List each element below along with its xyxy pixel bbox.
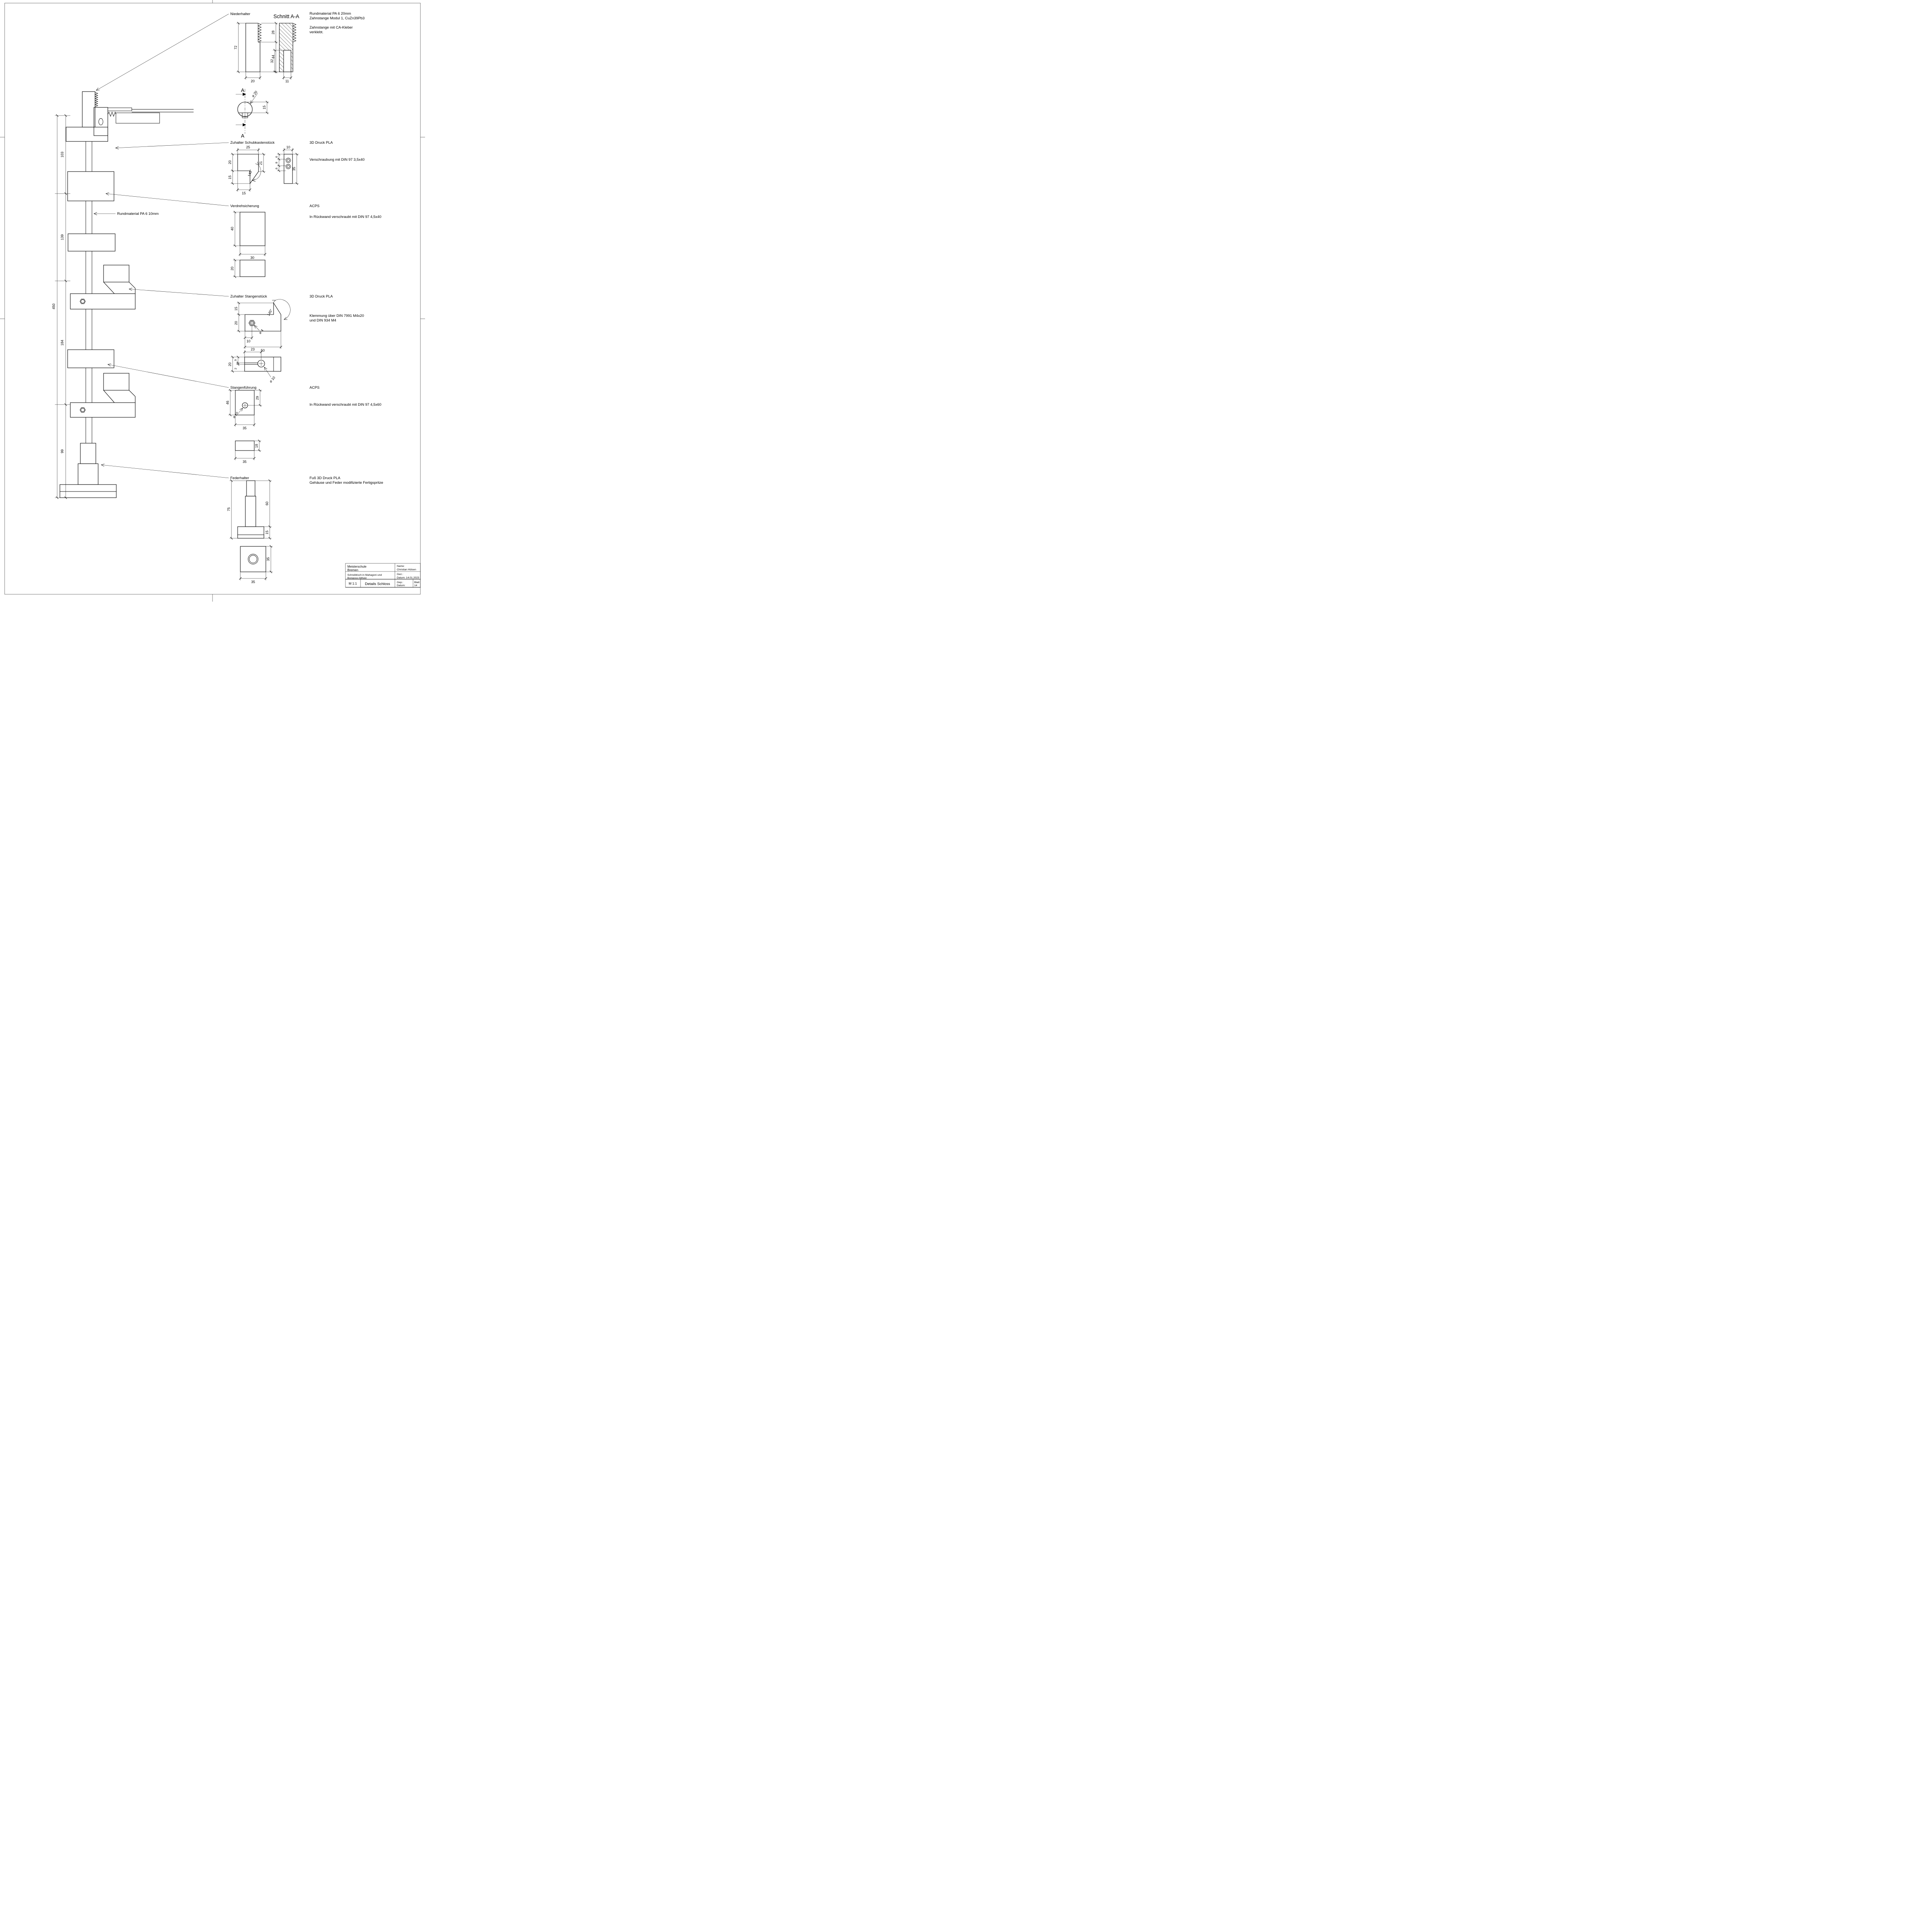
dim-15base: 15 — [265, 531, 269, 534]
dim-28: 28 — [271, 31, 275, 34]
dim-35f: 35 — [243, 426, 247, 430]
rack-teeth-detail — [258, 23, 261, 42]
scale-value: M 1:1 — [349, 582, 357, 585]
label-stangenstueck: Zuhalter Stangenstück — [230, 294, 267, 299]
dim-15t: 15 — [234, 307, 238, 311]
note-material-top-2: Zahnstange Modul 1, CuZn39Pb3 — [310, 16, 365, 20]
dim-20s: 20 — [234, 321, 238, 325]
callout-leaders: Niederhalter Zuhalter Schubkastenstück V… — [96, 12, 275, 480]
dim-20h: 20 — [228, 160, 232, 164]
cam-clamp-1 — [70, 265, 135, 309]
dim-99: 99 — [60, 449, 64, 453]
notes-column: Rundmaterial PA 6 20mm Zahnstange Modul … — [310, 12, 383, 485]
guide-block-3 — [68, 234, 115, 251]
label-schubkasten: Zuhalter Schubkastenstück — [230, 141, 275, 145]
dim-6a: 6 — [275, 156, 278, 158]
dim-35sq-r: 35 — [266, 557, 270, 561]
section-arrow-top — [243, 93, 246, 96]
dim-40: 40 — [230, 227, 234, 231]
section-rack-teeth — [293, 23, 296, 42]
dim-35sq-b: 35 — [251, 580, 255, 584]
detail-niederhalter: 72 28 44 20 — [234, 23, 278, 83]
label-fuehrung: Stangenführung — [230, 386, 257, 390]
detail-stangenstueck: 145° ⌀ 4 15 20 10 50 — [228, 299, 290, 383]
note-glue-1: Zahnstange mit CA-Kleber — [310, 26, 353, 30]
dim-72: 72 — [234, 46, 238, 49]
guide-block-1 — [66, 127, 108, 141]
detail-fuehrung: ⌀ 10 46 29 35 18 35 — [226, 390, 262, 464]
note-feder-material-2: Gehäuse und Feder modifizierte Fertigspr… — [310, 481, 383, 485]
note-material-top-1: Rundmaterial PA 6 20mm — [310, 12, 351, 16]
dim-46: 46 — [226, 401, 230, 405]
note-stangenstueck-mount-1: Klemmung über DIN 7991 M4x20 — [310, 314, 364, 318]
dim-20v: 20 — [230, 267, 234, 270]
title-block: Meisterschule Bremen Name: Christian Hül… — [345, 563, 420, 587]
feder-pin — [247, 481, 255, 496]
feder-bottom-view — [240, 546, 266, 572]
section-letter-bottom: A — [241, 133, 245, 139]
note-schubkasten-material: 3D Druck PLA — [310, 141, 333, 145]
dim-8: 8 — [275, 162, 278, 163]
fuehrung-plate — [235, 441, 254, 451]
sheet-number: 14 — [414, 584, 417, 587]
dim-9: 9 — [234, 359, 237, 361]
assembly-view: 103 139 184 99 450 Rundmaterial PA 6 10m… — [52, 92, 194, 498]
rack-bar — [82, 92, 95, 127]
project-line-2: Bongossi Altholz — [347, 577, 367, 580]
dim-145-2: 145° — [267, 308, 274, 316]
dim-60: 60 — [265, 502, 269, 505]
feder-base — [238, 527, 264, 538]
sheet-border — [0, 0, 425, 602]
cam-clamp-2 — [70, 373, 135, 417]
note-schubkasten-mount: Verschraubung mit DIN 97 3,5x40 — [310, 158, 365, 162]
sheet-title: Details Schloss — [365, 582, 390, 586]
latch-block — [94, 107, 108, 136]
dim-18: 18 — [255, 444, 259, 448]
vertical-rod — [86, 141, 92, 443]
verdreh-front — [240, 212, 265, 246]
note-stangenstueck-mount-2: und DIN 934 M4 — [310, 318, 336, 323]
label-niederhalter: Niederhalter — [230, 12, 250, 16]
dim-139: 139 — [60, 234, 64, 240]
note-verdreh-mount: In Rückwand verschraubt mit DIN 97 4,5x4… — [310, 215, 381, 219]
section-title: Schnitt A-A — [274, 14, 299, 19]
name-label: Name: — [397, 565, 405, 568]
school-name-2: Bremen — [347, 568, 358, 572]
detail-feder: 75 60 15 35 35 — [227, 481, 273, 584]
drawer-plate — [116, 113, 160, 123]
verdreh-side — [240, 260, 265, 277]
project-line-1: Schreibtisch in Mahagoni und — [347, 574, 382, 577]
dim-dia10p: ⌀ 10 — [269, 376, 276, 383]
gep-label: Gep.: — [397, 581, 403, 584]
knob-plan-view: A A ⌀ 20 15 — [236, 87, 269, 139]
gez-date: Datum: 14.01.2023 — [397, 577, 419, 579]
spring-holder-foot — [60, 443, 116, 498]
dim-23: 23 — [251, 347, 255, 351]
dim-20w: 20 — [251, 79, 255, 83]
dim-75: 75 — [227, 507, 231, 511]
gez-label: Gez.: — [397, 573, 403, 576]
dim-450: 450 — [52, 303, 56, 309]
spring — [108, 112, 116, 116]
dim-35side: 35 — [292, 167, 296, 171]
dim-35fp: 35 — [243, 460, 247, 464]
guide-block-4 — [68, 350, 114, 368]
drawing-sheet: 103 139 184 99 450 Rundmaterial PA 6 10m… — [0, 0, 425, 602]
dim-10n: 10 — [247, 339, 250, 343]
name-value: Christian Hülsen — [397, 568, 416, 571]
dim-184: 184 — [60, 340, 64, 345]
dim-6b: 6 — [275, 168, 278, 169]
label-feder: Federhalter — [230, 476, 249, 480]
note-stangenstueck-material: 3D Druck PLA — [310, 294, 333, 299]
note-glue-2: verklebt. — [310, 30, 323, 34]
section-a-a: Schnitt A-A 32 11 — [270, 14, 299, 83]
dim-103: 103 — [60, 151, 64, 157]
dim-25: 25 — [246, 145, 250, 149]
rod-material-callout: Rundmaterial PA 6 10mm — [94, 212, 159, 216]
rack-teeth — [95, 92, 98, 107]
gep-date: Datum: — [397, 584, 405, 587]
note-feder-material-1: Fuß 3D Druck PLA — [310, 476, 340, 480]
dim-2: 2 — [234, 368, 237, 369]
feder-body — [245, 496, 256, 527]
dim-44: 44 — [271, 55, 275, 59]
dim-15b: 15 — [242, 191, 246, 195]
label-verdreh: Verdrehsicherung — [230, 204, 259, 208]
sheet-label: Blatt — [414, 581, 420, 584]
dim-32: 32 — [270, 59, 274, 63]
dim-11: 11 — [285, 79, 289, 83]
school-name-1: Meisterschule — [347, 565, 367, 568]
rod-callout-label: Rundmaterial PA 6 10mm — [117, 212, 159, 216]
stangenstueck-plan-view: 23 9 2 20 ⌀ 10 — [228, 347, 281, 383]
dim-30: 30 — [250, 256, 254, 260]
dim-20p: 20 — [228, 362, 232, 366]
section-letter-top: A — [241, 87, 245, 93]
note-fuehrung-material: ACPS — [310, 386, 320, 390]
section-pocket — [284, 50, 291, 72]
drawer-plate-thin — [108, 108, 132, 111]
note-fuehrung-mount: In Rückwand verschraubt mit DIN 97 4,5x6… — [310, 403, 381, 407]
dim-50: 50 — [261, 349, 265, 352]
dim-21: 21 — [259, 161, 263, 165]
oval-hole — [99, 119, 103, 125]
detail-schubkasten: 145° 25 20 15 21 15 10 35 — [228, 145, 299, 195]
dim-15-flat: 15 — [262, 105, 266, 109]
guide-block-2 — [68, 172, 114, 201]
dim-15h: 15 — [228, 175, 232, 179]
dim-10side: 10 — [286, 145, 290, 149]
section-arrow-bottom — [243, 123, 246, 126]
dim-29: 29 — [255, 396, 259, 400]
note-verdreh-material: ACPS — [310, 204, 320, 208]
dim-145: 145° — [247, 169, 253, 177]
dim-dia4: ⌀ 4 — [258, 328, 264, 335]
detail-verdreh: 40 30 20 — [230, 212, 265, 277]
